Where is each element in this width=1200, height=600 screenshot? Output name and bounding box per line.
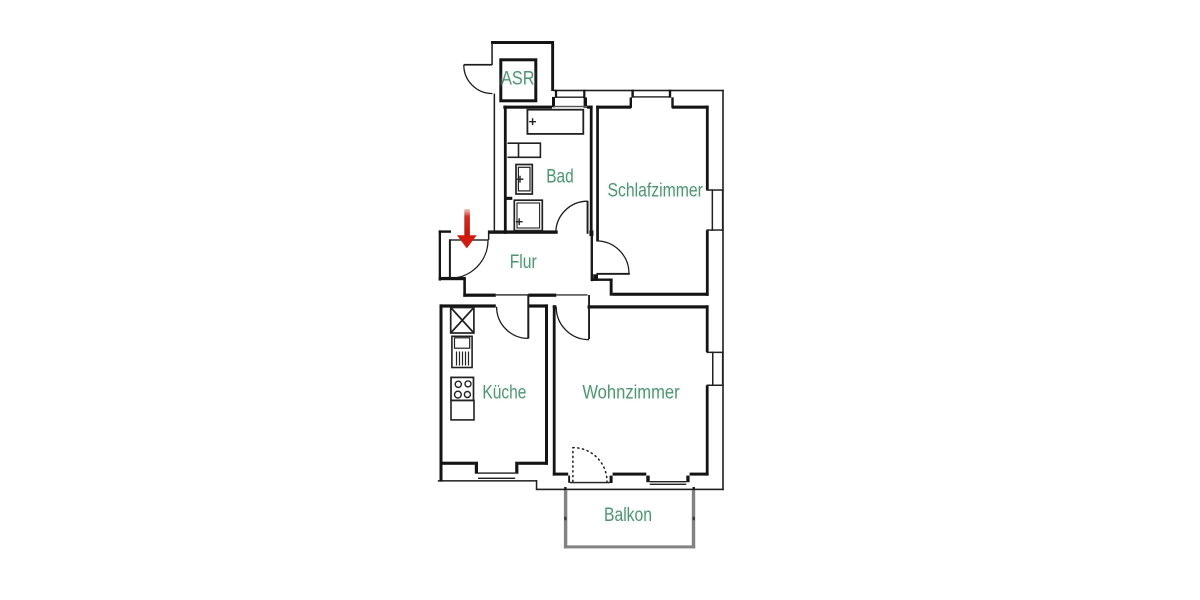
svg-text:Schlafzimmer: Schlafzimmer [607, 181, 703, 202]
svg-text:Balkon: Balkon [604, 505, 652, 526]
svg-text:Wohnzimmer: Wohnzimmer [582, 383, 680, 404]
svg-text:Bad: Bad [546, 166, 574, 187]
svg-text:Küche: Küche [482, 383, 526, 404]
svg-text:ASR: ASR [501, 69, 534, 90]
svg-text:Flur: Flur [510, 252, 538, 273]
